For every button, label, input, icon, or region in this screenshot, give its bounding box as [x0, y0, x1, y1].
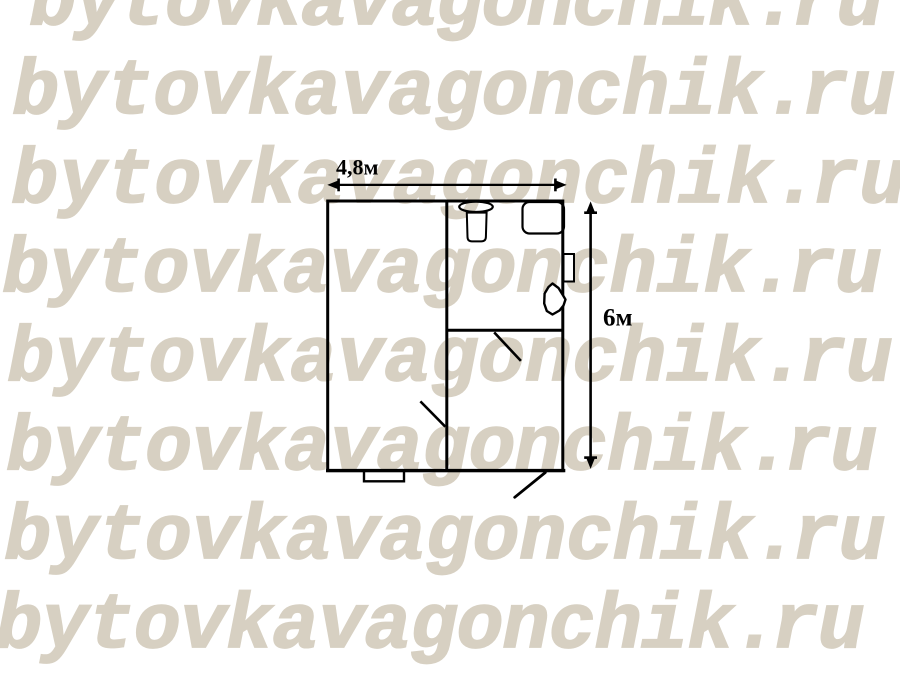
- svg-text:4,8м: 4,8м: [336, 155, 379, 180]
- svg-text:6м: 6м: [603, 305, 633, 332]
